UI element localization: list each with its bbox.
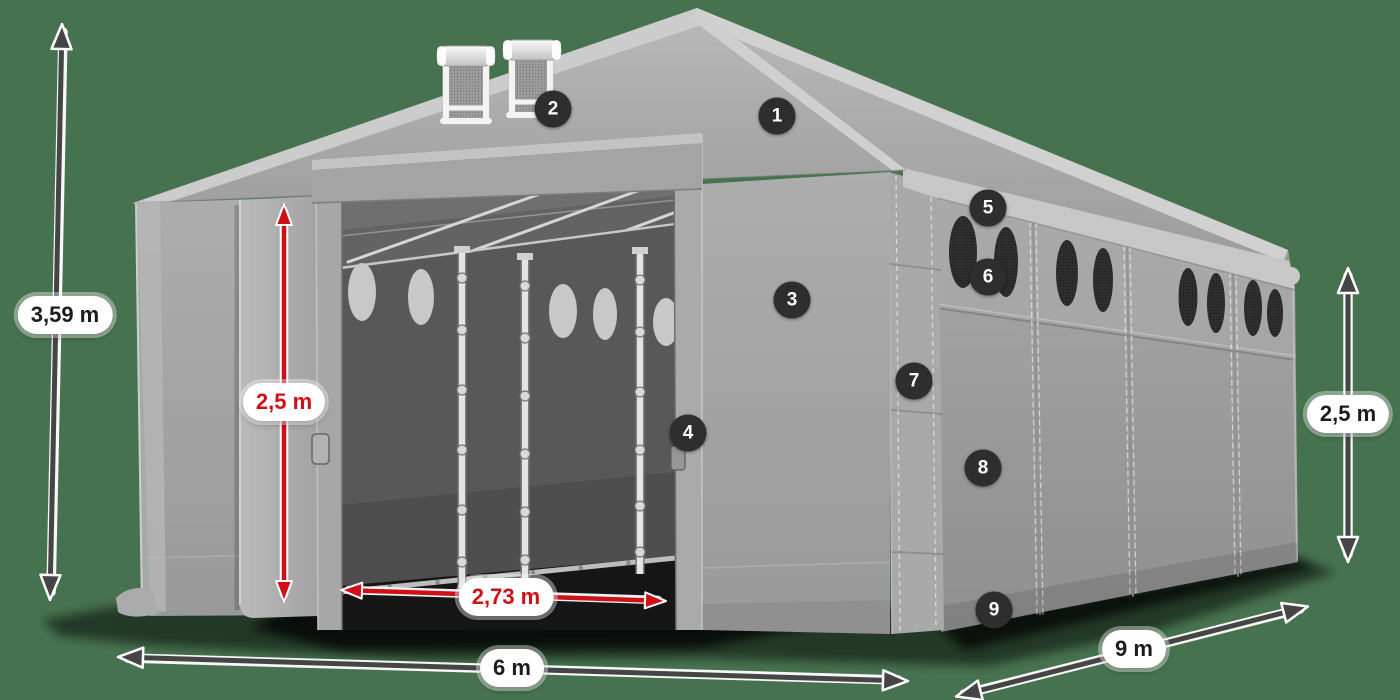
side-window-oval (1179, 268, 1198, 326)
door-width-label: 2,73 m (459, 578, 554, 616)
window-oval (348, 263, 376, 321)
marker-9[interactable]: 9 (976, 592, 1013, 629)
side-length-label: 9 m (1102, 630, 1166, 668)
side-window-oval (1207, 273, 1225, 333)
marker-5[interactable]: 5 (970, 190, 1007, 227)
door-right-post (674, 134, 702, 630)
marker-1[interactable]: 1 (759, 98, 796, 135)
total-height-label: 3,59 m (18, 296, 113, 334)
window-oval (549, 284, 577, 338)
gable-vent-left (437, 46, 495, 124)
marker-4[interactable]: 4 (670, 415, 707, 452)
front-corner-strip (889, 172, 944, 634)
window-oval (408, 269, 434, 325)
window-oval (593, 288, 617, 340)
marker-8[interactable]: 8 (965, 450, 1002, 487)
door-handle (312, 434, 329, 464)
side-window-oval (1093, 248, 1113, 312)
marker-3[interactable]: 3 (774, 282, 811, 319)
side-window-oval (1056, 240, 1078, 306)
front-right-wall (702, 172, 890, 634)
left-corner-foot (116, 588, 158, 617)
marker-7[interactable]: 7 (896, 363, 933, 400)
front-width-label: 6 m (480, 649, 544, 687)
door-interior (340, 181, 679, 630)
door-height-label: 2,5 m (243, 383, 325, 421)
marker-6[interactable]: 6 (970, 259, 1007, 296)
tent-illustration (0, 0, 1400, 700)
marker-2[interactable]: 2 (535, 91, 572, 128)
side-window-oval (1267, 289, 1283, 337)
side-window-oval (1244, 280, 1262, 336)
tent-dimensions-diagram: 3,59 m 2,5 m 2,73 m 6 m 9 m 2,5 m 1 2 3 … (0, 0, 1400, 700)
side-height-label: 2,5 m (1307, 395, 1389, 433)
